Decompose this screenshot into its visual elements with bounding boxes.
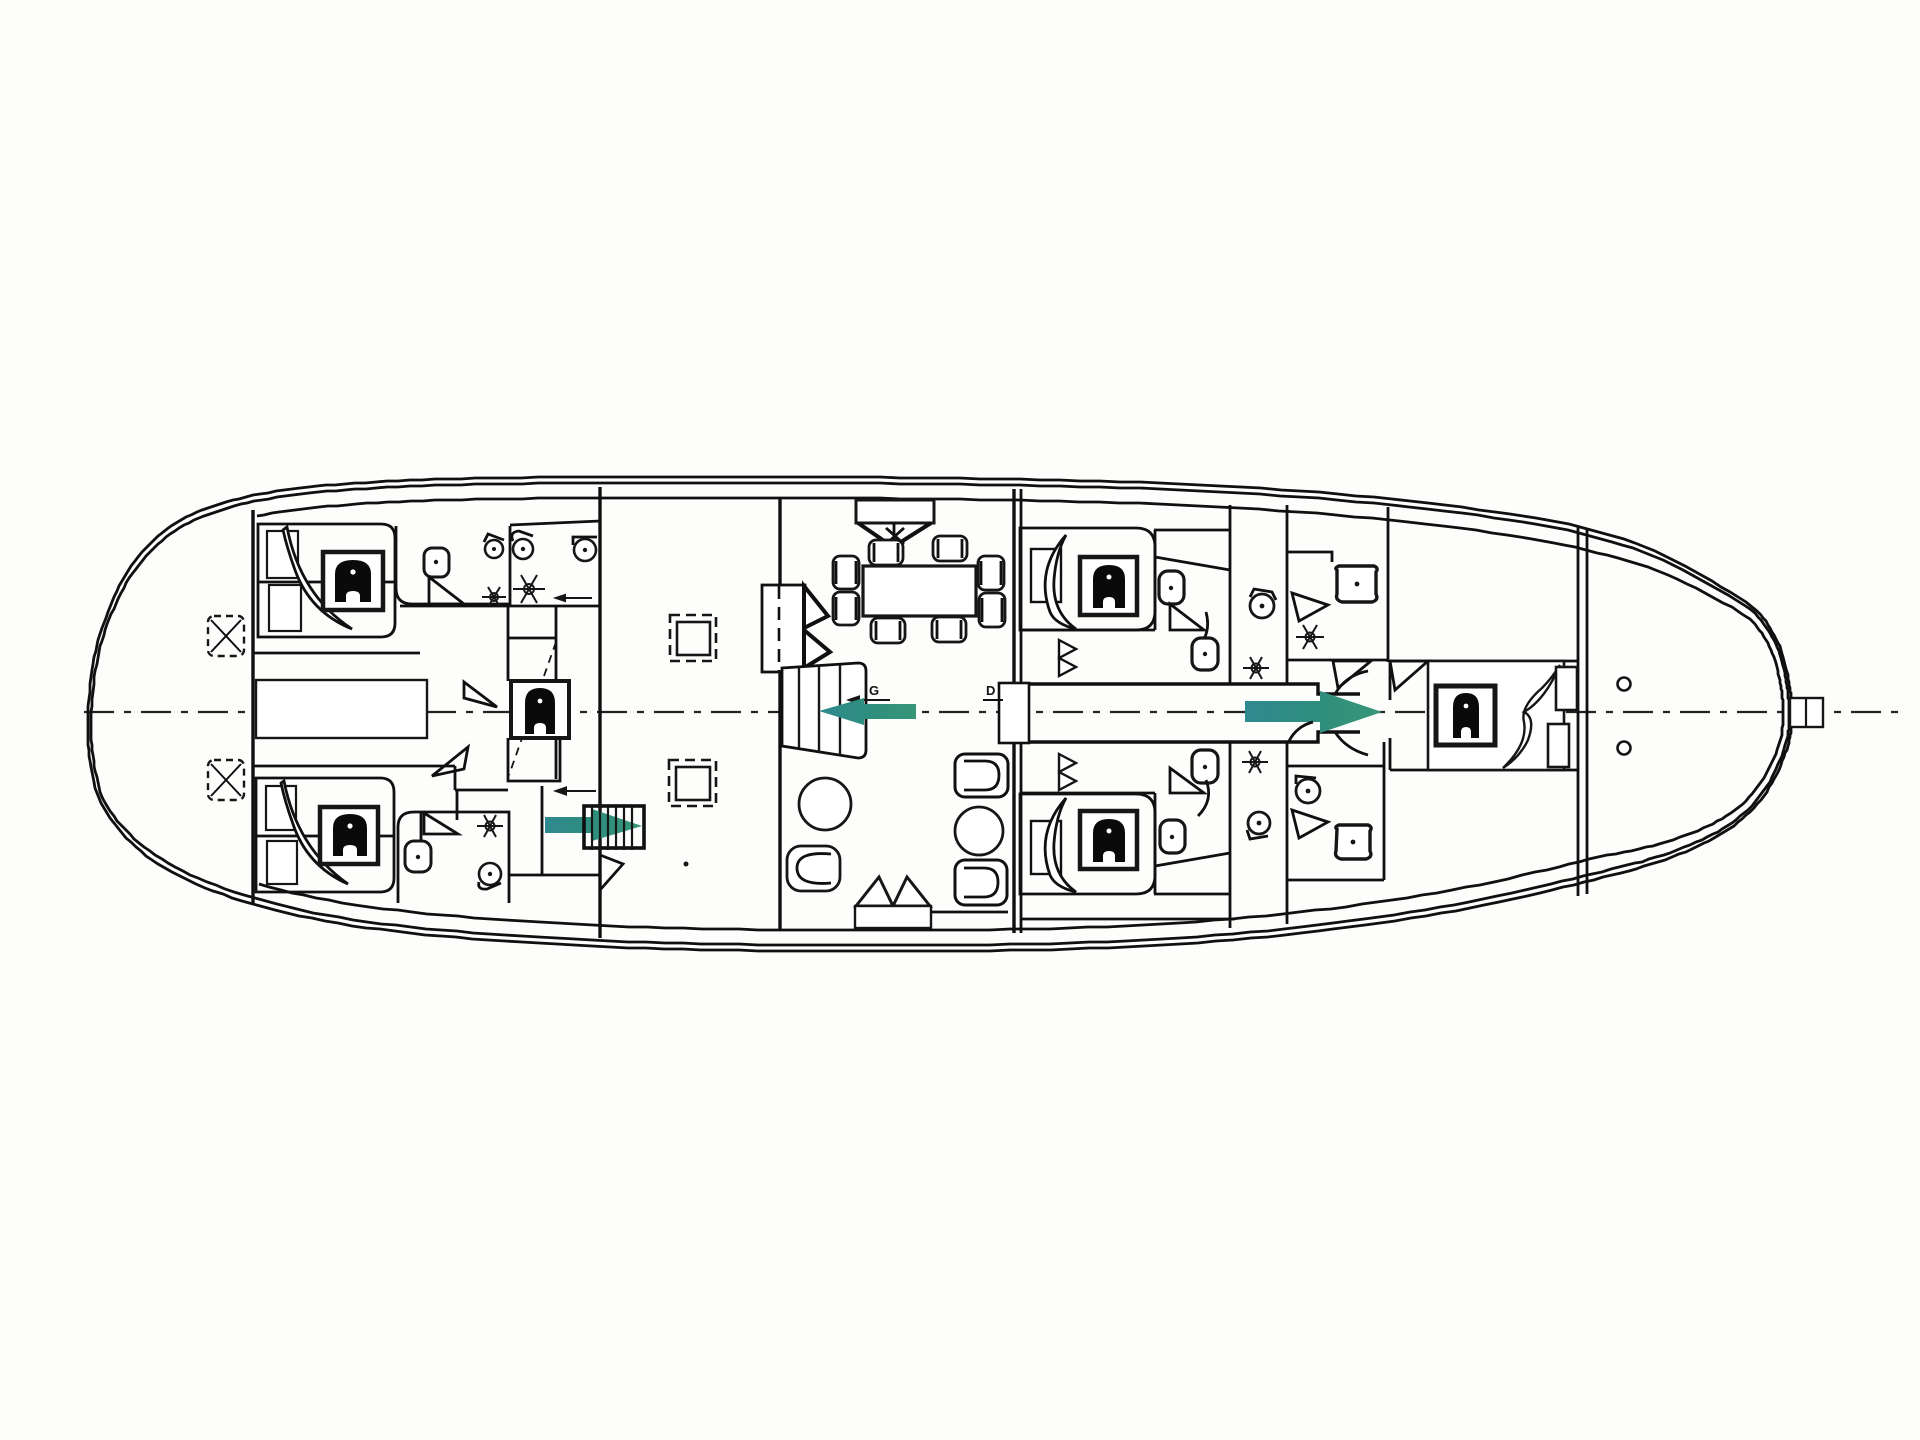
svg-text:D: D: [986, 683, 995, 698]
svg-text:G: G: [869, 683, 879, 698]
